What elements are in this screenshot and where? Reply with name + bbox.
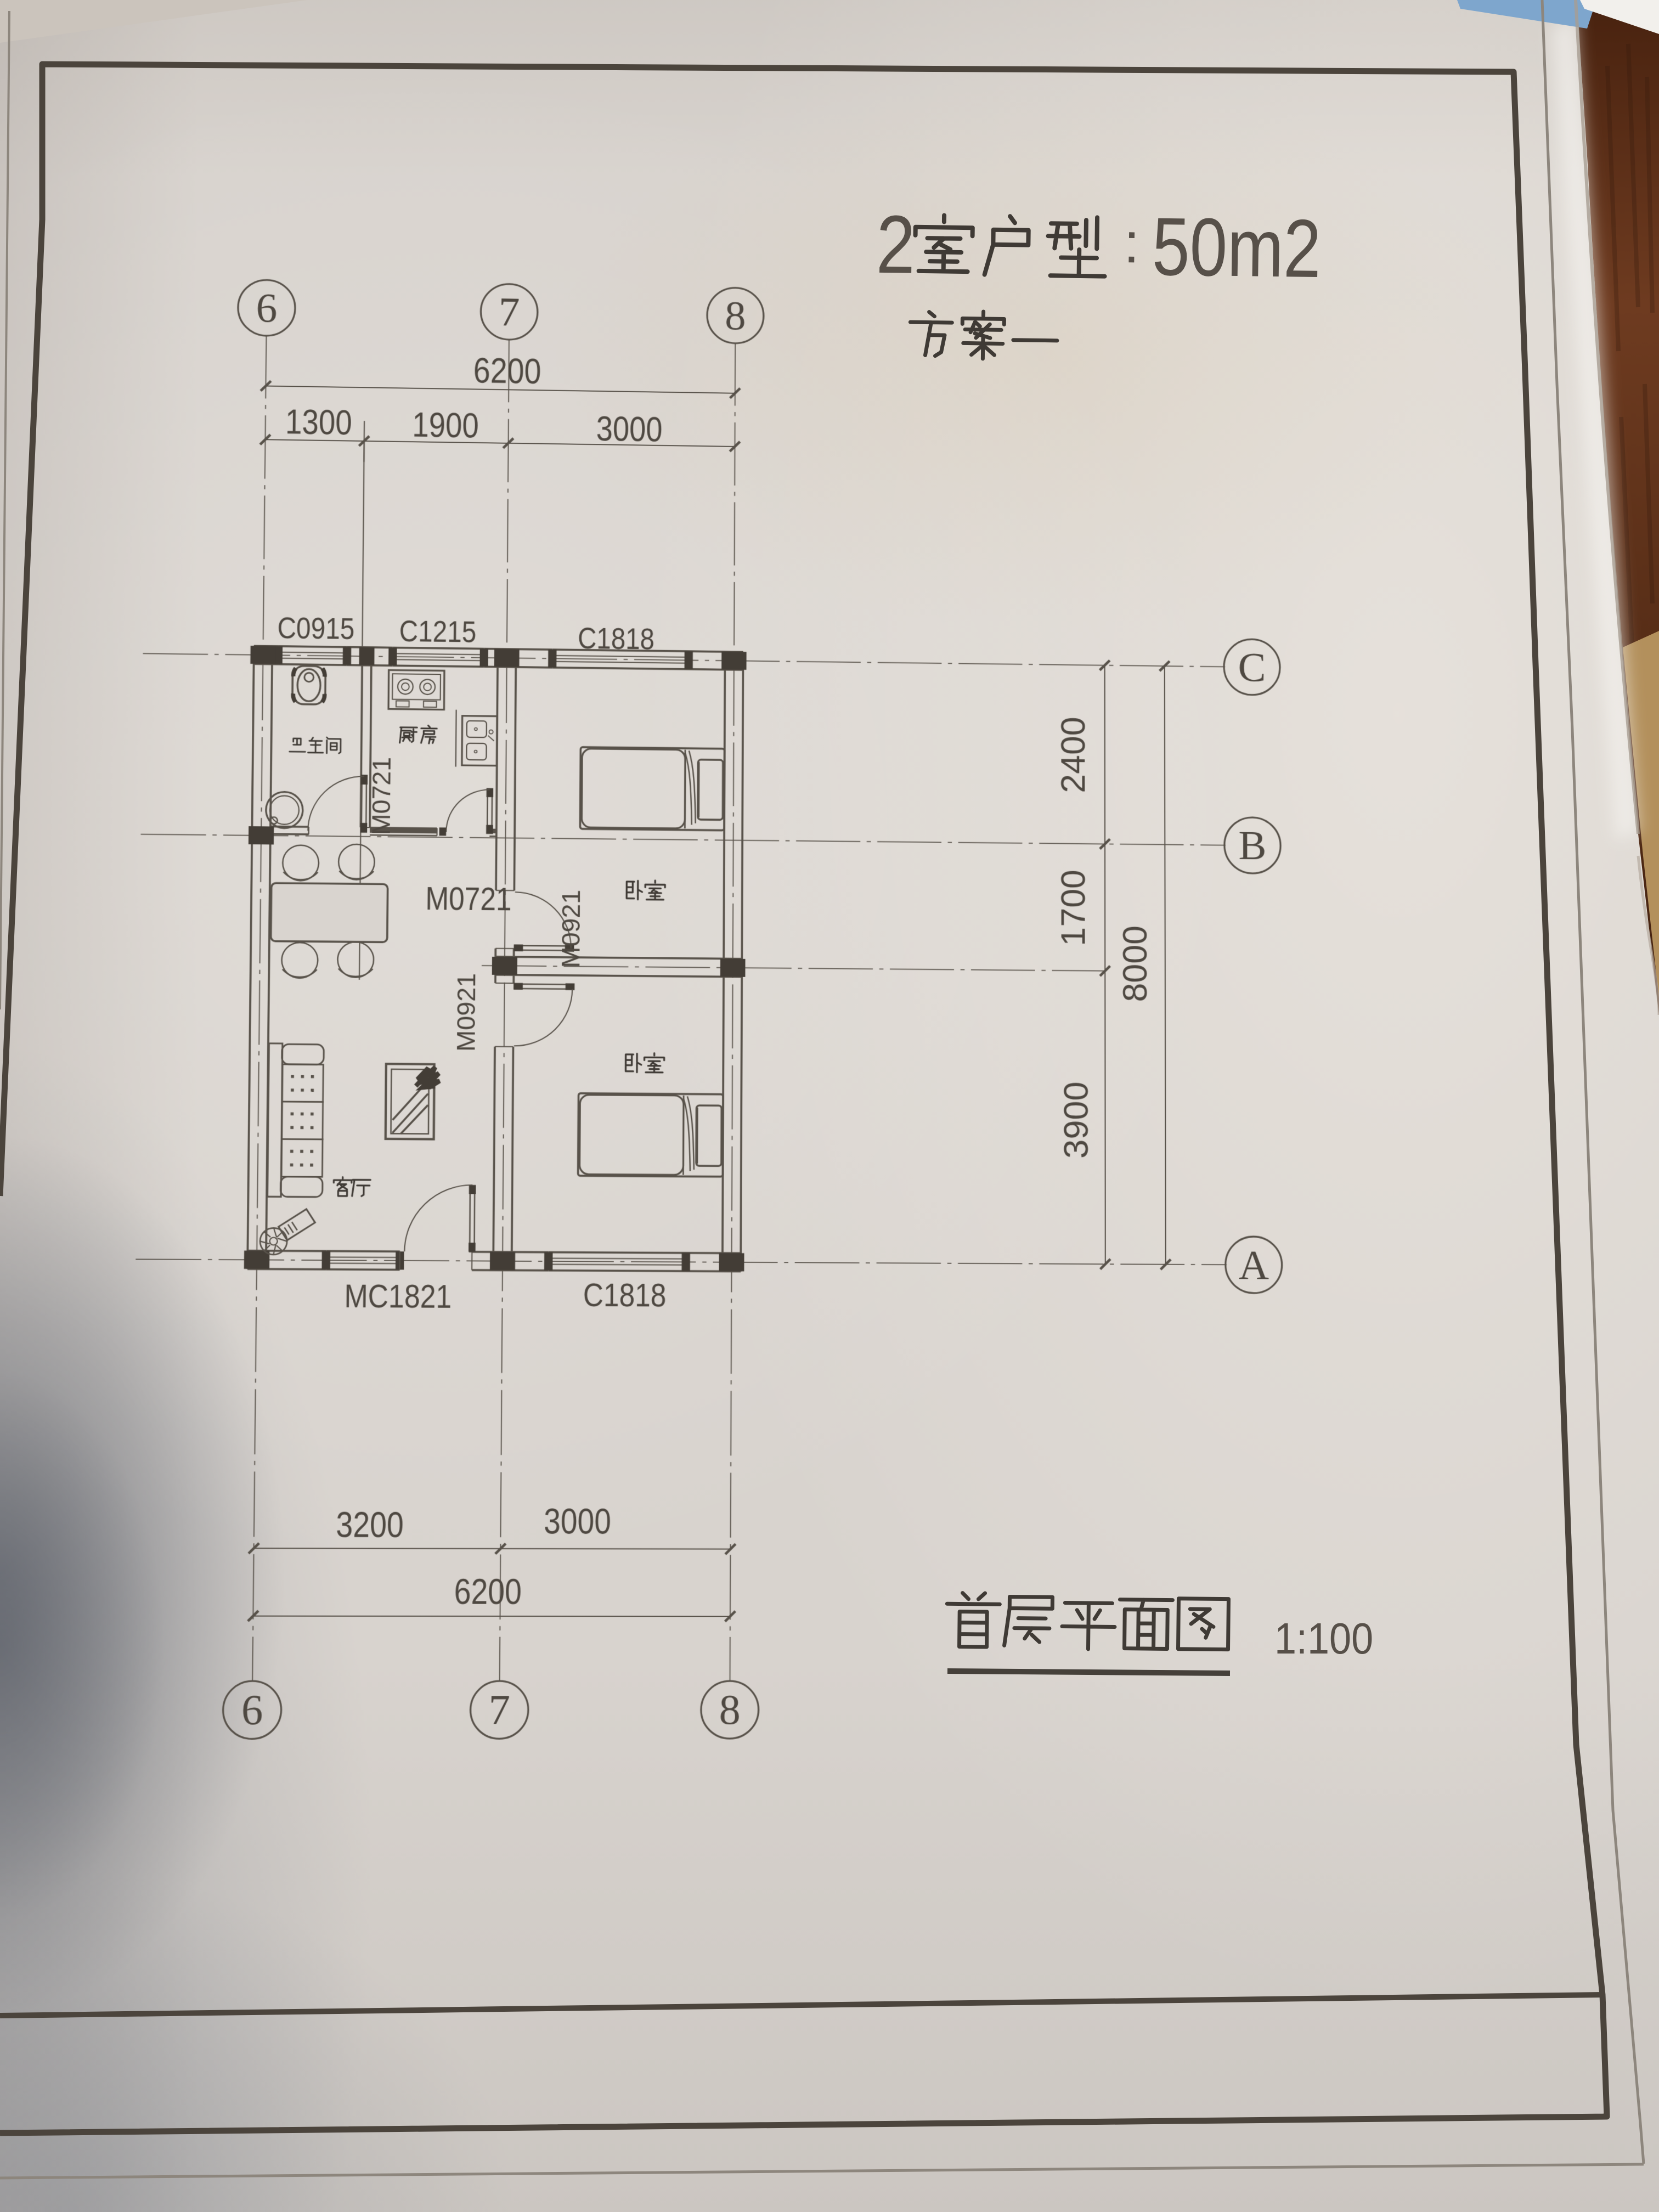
- svg-text::: :: [1124, 211, 1141, 275]
- svg-text:3900: 3900: [1057, 1081, 1095, 1159]
- svg-text:6: 6: [256, 285, 278, 331]
- svg-text:MC1821: MC1821: [344, 1277, 452, 1314]
- svg-text:C0915: C0915: [277, 611, 354, 646]
- svg-text:6200: 6200: [454, 1571, 522, 1612]
- svg-text:6200: 6200: [473, 350, 541, 391]
- svg-text:M0921: M0921: [452, 973, 481, 1052]
- svg-text:8000: 8000: [1116, 926, 1154, 1002]
- svg-text:C1818: C1818: [583, 1276, 667, 1313]
- svg-text:6: 6: [241, 1686, 263, 1734]
- svg-text:M0921: M0921: [556, 889, 585, 968]
- svg-text:C1215: C1215: [399, 614, 476, 649]
- svg-text:1300: 1300: [285, 402, 352, 442]
- svg-text:7: 7: [499, 289, 520, 335]
- svg-text:C: C: [1238, 644, 1266, 690]
- svg-text:C1818: C1818: [578, 622, 654, 656]
- svg-text:3000: 3000: [544, 1501, 611, 1542]
- svg-text:1700: 1700: [1054, 870, 1093, 946]
- svg-text:M0721: M0721: [425, 880, 512, 917]
- svg-text:3200: 3200: [336, 1504, 404, 1545]
- svg-text:8: 8: [719, 1686, 741, 1734]
- svg-text:A: A: [1238, 1242, 1269, 1288]
- svg-text:2400: 2400: [1054, 716, 1093, 793]
- svg-text:1900: 1900: [412, 405, 479, 445]
- svg-text:8: 8: [725, 292, 746, 338]
- svg-text:7: 7: [488, 1686, 510, 1734]
- svg-text:M0721: M0721: [366, 757, 396, 835]
- svg-text:3000: 3000: [596, 409, 663, 449]
- svg-text:B: B: [1238, 822, 1266, 869]
